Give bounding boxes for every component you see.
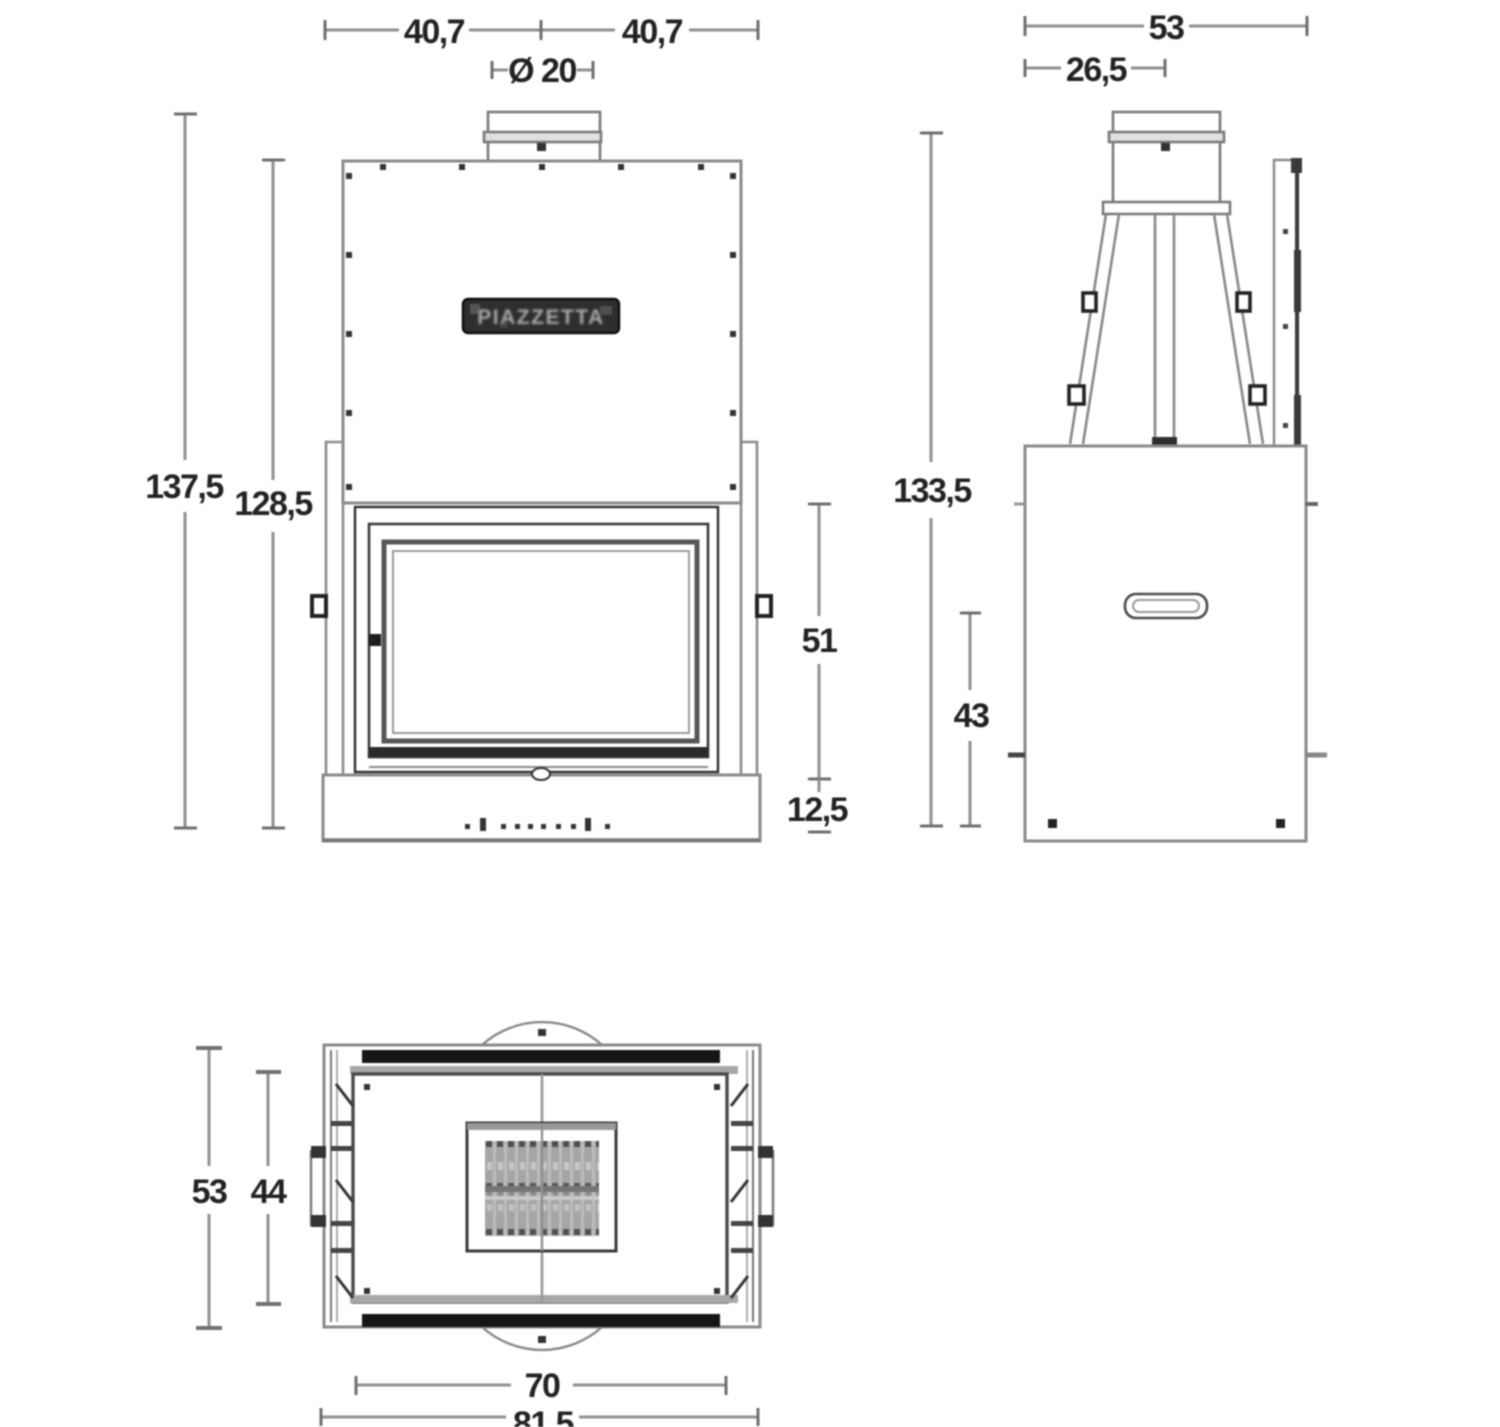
svg-text:81,5: 81,5 xyxy=(513,1405,574,1427)
svg-text:128,5: 128,5 xyxy=(234,485,312,523)
svg-text:44: 44 xyxy=(251,1173,287,1211)
svg-text:Ø 20: Ø 20 xyxy=(508,52,576,90)
svg-text:43: 43 xyxy=(954,697,989,735)
svg-text:70: 70 xyxy=(525,1367,560,1405)
svg-text:53: 53 xyxy=(192,1173,227,1211)
svg-text:137,5: 137,5 xyxy=(145,468,223,506)
svg-text:40,7: 40,7 xyxy=(404,13,465,51)
svg-text:40,7: 40,7 xyxy=(622,13,683,51)
svg-text:26,5: 26,5 xyxy=(1066,51,1127,89)
svg-text:12,5: 12,5 xyxy=(787,791,848,829)
svg-text:PIAZZETTA: PIAZZETTA xyxy=(477,306,604,329)
svg-text:53: 53 xyxy=(1149,9,1184,47)
svg-text:51: 51 xyxy=(802,622,837,660)
svg-text:133,5: 133,5 xyxy=(893,472,971,510)
